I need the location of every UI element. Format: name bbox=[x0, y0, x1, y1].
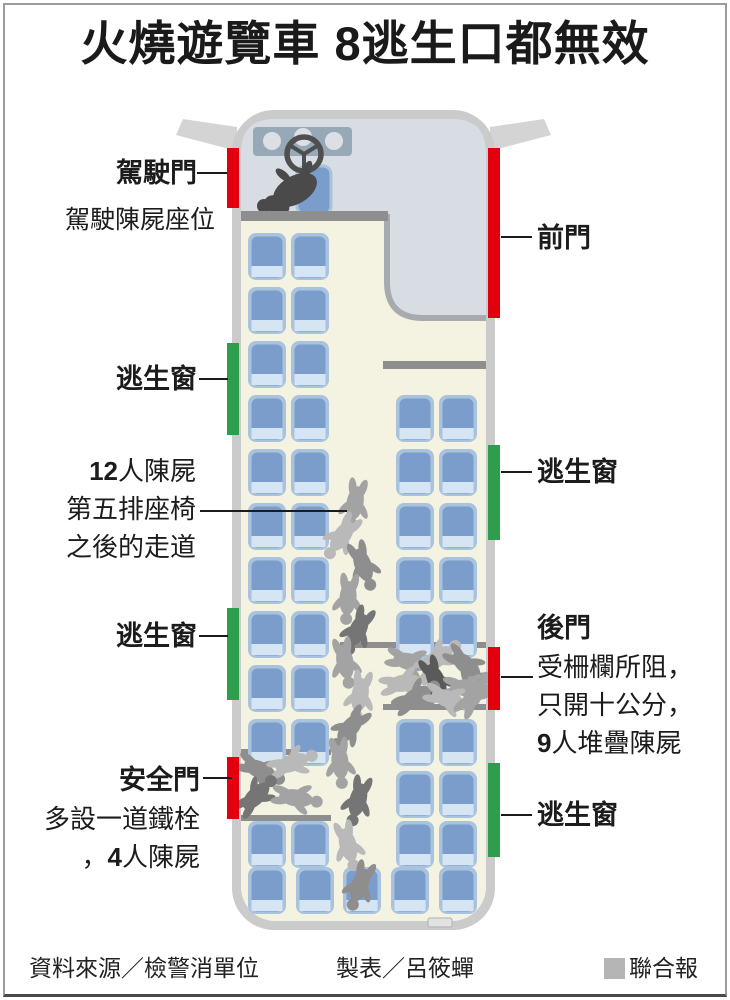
seat bbox=[439, 557, 477, 604]
seat bbox=[248, 821, 286, 868]
driver-seat-note: 駕駛陳屍座位 bbox=[65, 205, 215, 235]
escape-window-left-2-label: 逃生窗 bbox=[116, 622, 197, 650]
seat bbox=[291, 449, 329, 496]
seat bbox=[291, 395, 329, 442]
escape-window-right-1-bar bbox=[488, 445, 500, 540]
front-door-rail bbox=[383, 361, 486, 369]
escape-window-right-2-line bbox=[501, 814, 532, 816]
escape-window-right-2-label: 逃生窗 bbox=[537, 801, 618, 829]
seat bbox=[248, 557, 286, 604]
seat bbox=[396, 611, 434, 658]
driver-door-bar bbox=[227, 148, 239, 208]
seat bbox=[291, 341, 329, 388]
driver-partition-rail bbox=[241, 211, 388, 221]
seat bbox=[291, 233, 329, 280]
escape-window-left-1-label: 逃生窗 bbox=[116, 365, 197, 393]
bus-fire-infographic: 火燒遊覽車 8逃生口都無效 bbox=[0, 0, 730, 1000]
seat bbox=[248, 233, 286, 280]
escape-window-left-2-line bbox=[199, 635, 228, 637]
front-door-line bbox=[501, 236, 532, 238]
escape-window-right-1-line bbox=[501, 471, 532, 473]
seat bbox=[248, 611, 286, 658]
seat bbox=[396, 771, 434, 818]
bus-floorplan bbox=[170, 98, 560, 946]
left-mirror bbox=[176, 119, 237, 151]
brand-name: 聯合報 bbox=[629, 955, 698, 981]
escape-window-left-2-bar bbox=[227, 608, 239, 700]
rear-door-label: 後門 受柵欄所阻， 只開十公分， 9人堆疊陳屍 bbox=[537, 608, 693, 762]
seat bbox=[439, 867, 477, 914]
seat bbox=[396, 395, 434, 442]
seat bbox=[248, 395, 286, 442]
safety-door-label: 安全門 多設一道鐵栓 ，4人陳屍 bbox=[44, 760, 200, 876]
brand: 聯合報 bbox=[604, 955, 698, 981]
right-mirror bbox=[490, 119, 551, 151]
seat bbox=[439, 771, 477, 818]
seat bbox=[248, 665, 286, 712]
seat bbox=[439, 503, 477, 550]
seat bbox=[396, 557, 434, 604]
seat bbox=[291, 287, 329, 334]
seat bbox=[396, 449, 434, 496]
seat bbox=[296, 867, 334, 914]
escape-window-right-2-bar bbox=[488, 763, 500, 857]
escape-window-right-1-label: 逃生窗 bbox=[537, 458, 618, 486]
seat bbox=[396, 821, 434, 868]
safety-door-frame-bottom bbox=[241, 815, 331, 821]
seat bbox=[391, 867, 429, 914]
source-credit: 資料來源／檢警消單位 bbox=[29, 955, 259, 981]
safety-door-line bbox=[203, 777, 232, 779]
seat bbox=[248, 341, 286, 388]
seat bbox=[396, 503, 434, 550]
brand-square-icon bbox=[604, 958, 625, 979]
front-door-label: 前門 bbox=[537, 224, 591, 252]
rear-door-bar bbox=[488, 647, 500, 710]
seat bbox=[439, 395, 477, 442]
seat bbox=[248, 449, 286, 496]
seat bbox=[248, 287, 286, 334]
license-plate bbox=[428, 918, 452, 927]
driver-door-label: 駕駛門 bbox=[116, 159, 197, 187]
front-door-bar bbox=[488, 148, 500, 318]
safety-door-bar bbox=[227, 757, 239, 819]
seat bbox=[248, 867, 286, 914]
seat bbox=[439, 449, 477, 496]
seat bbox=[291, 557, 329, 604]
seat bbox=[291, 665, 329, 712]
author-credit: 製表／呂筱蟬 bbox=[336, 955, 474, 981]
escape-window-left-1-bar bbox=[227, 343, 239, 435]
aisle-bodies-line bbox=[200, 510, 347, 512]
page-title: 火燒遊覽車 8逃生口都無效 bbox=[0, 18, 730, 70]
seat bbox=[439, 719, 477, 766]
aisle-bodies-label: 12人陳屍 第五排座椅 之後的走道 bbox=[66, 452, 196, 566]
seat bbox=[291, 611, 329, 658]
escape-window-left-1-line bbox=[199, 378, 228, 380]
seat bbox=[396, 719, 434, 766]
seat bbox=[439, 821, 477, 868]
rear-door-line bbox=[501, 676, 533, 678]
seat bbox=[291, 821, 329, 868]
driver-door-line bbox=[197, 172, 227, 174]
